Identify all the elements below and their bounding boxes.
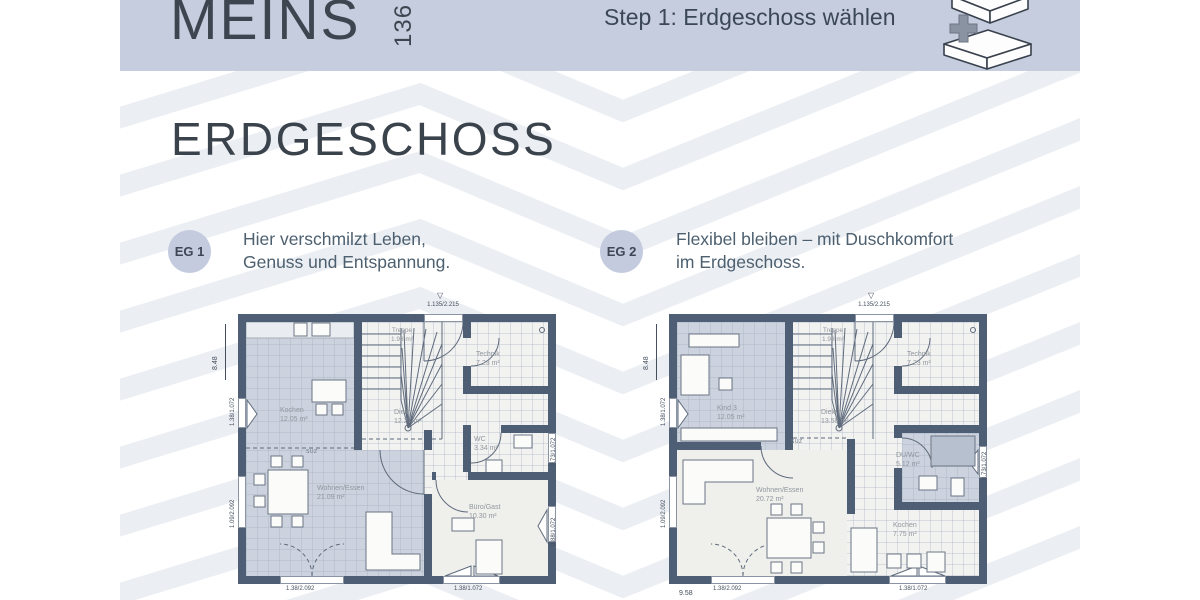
room-label-technik: Technik7.23 m² [907, 350, 931, 368]
step-label: Step 1: Erdgeschoss wählen [604, 4, 896, 31]
window-markers [247, 328, 547, 577]
wall [463, 425, 471, 472]
wall [785, 322, 793, 450]
room-label-diele: Diele12.27 m² [394, 408, 422, 426]
room-label-duwc: DU/WC5.12 m² [896, 451, 920, 469]
brand-model-number: 136 [390, 4, 418, 47]
wall [894, 425, 902, 438]
dimension-label-left-lower: 1.09/2.092 [230, 500, 236, 528]
window [238, 398, 246, 428]
room-label-buero: Büro/Gast10.30 m² [469, 503, 501, 521]
wall [894, 425, 979, 433]
dimension-line [656, 324, 657, 380]
terrace-door [280, 576, 344, 584]
add-storey-icon [932, 0, 1036, 71]
wall [677, 442, 761, 450]
description-eg2-line1: Flexibel bleiben – mit Duschkomfort [676, 228, 953, 251]
dimension-label-top: 1.135/2.215 [401, 302, 485, 308]
entrance-door [855, 314, 894, 322]
description-eg1-line1: Hier verschmilzt Leben, [243, 228, 450, 251]
wall [894, 322, 902, 338]
room-label-wc: WC3.34 m² [474, 435, 498, 453]
page: MEINS 136 Step 1: Erdgeschoss wählen ERD… [0, 0, 1200, 600]
door-position-marker-icon: ▽ [868, 291, 874, 300]
wall [424, 430, 432, 450]
wall [847, 439, 855, 514]
description-eg1: Hier verschmilzt Leben, Genuss und Entsp… [243, 228, 450, 274]
dimension-label-right-upper: 0.73/1.072 [551, 438, 557, 466]
badge-eg2[interactable]: EG 2 [600, 230, 643, 273]
dimension-label-bottom-right: 1.38/1.072 [454, 586, 482, 592]
wall [354, 322, 362, 450]
door-position-marker-icon: ▽ [437, 291, 443, 300]
description-eg1-line2: Genuss und Entspannung. [243, 251, 450, 274]
suz-label: SUZ [306, 449, 318, 455]
dimension-label-left-upper: 1.38/1.072 [230, 398, 236, 426]
suz-label: SUZ [791, 439, 803, 445]
dimension-label-left-lower: 1.09/2.092 [661, 500, 667, 528]
room-label-kind3: Kind 312.05 m² [717, 404, 745, 422]
dimension-label-left-upper: 1.38/1.072 [661, 398, 667, 426]
wall [468, 472, 548, 480]
wall [894, 502, 979, 510]
wall [432, 472, 436, 480]
wall [501, 425, 548, 433]
dimension-label-bottom-width: 9.58 [679, 590, 693, 597]
dimension-label-right-lower: 0.88/1.072 [551, 518, 557, 546]
dimension-label-bottom-right: 1.38/1.072 [899, 586, 927, 592]
floorplan-eg2[interactable]: Kind 312.05 m² Treppe1.93 m² Technik7.23… [669, 314, 987, 584]
plan1-drawing [238, 314, 556, 584]
brand-logo: MEINS [170, 0, 361, 53]
room-label-treppe: Treppe1.93 m² [801, 326, 865, 344]
furniture [681, 334, 975, 573]
wall [463, 322, 471, 338]
floorplan-eg1[interactable]: Kochen12.05 m² Treppe1.93 m² Technik7.23… [238, 314, 556, 584]
room-label-wohnen: Wohnen/Essen20.72 m² [756, 486, 803, 504]
room-label-wohnen: Wohnen/Essen21.09 m² [317, 484, 364, 502]
entrance-door [424, 314, 463, 322]
dimension-label-bottom-left: 1.38/2.092 [713, 586, 741, 592]
window [889, 576, 946, 584]
window [443, 576, 500, 584]
header-bar: MEINS 136 Step 1: Erdgeschoss wählen [120, 0, 1080, 71]
badge-eg1-label: EG 1 [175, 244, 205, 259]
wall [894, 386, 979, 394]
terrace-door [711, 576, 775, 584]
room-label-diele: Diele13.59 m² [821, 408, 849, 426]
window [669, 476, 677, 528]
badge-eg2-label: EG 2 [607, 244, 637, 259]
room-label-treppe: Treppe1.93 m² [370, 326, 434, 344]
description-eg2: Flexibel bleiben – mit Duschkomfort im E… [676, 228, 953, 274]
dimension-label-bottom-left: 1.38/2.092 [286, 586, 314, 592]
dimension-label-height: 8.48 [643, 356, 650, 370]
badge-eg1[interactable]: EG 1 [168, 230, 211, 273]
window [238, 476, 246, 528]
page-title: ERDGESCHOSS [171, 112, 556, 166]
dimension-line [225, 324, 226, 380]
description-eg2-line2: im Erdgeschoss. [676, 251, 953, 274]
wall [424, 494, 432, 576]
window [669, 398, 677, 428]
dimension-label-top: 1.135/2.215 [832, 302, 916, 308]
room-label-technik: Technik7.23 m² [476, 350, 500, 368]
room-label-kochen: Kochen12.05 m² [280, 406, 308, 424]
dimension-label-height: 8.48 [212, 356, 219, 370]
dimension-label-right-upper: 0.73/1.072 [982, 452, 988, 480]
wall [463, 386, 548, 394]
room-label-kochen: Kochen7.75 m² [893, 521, 917, 539]
